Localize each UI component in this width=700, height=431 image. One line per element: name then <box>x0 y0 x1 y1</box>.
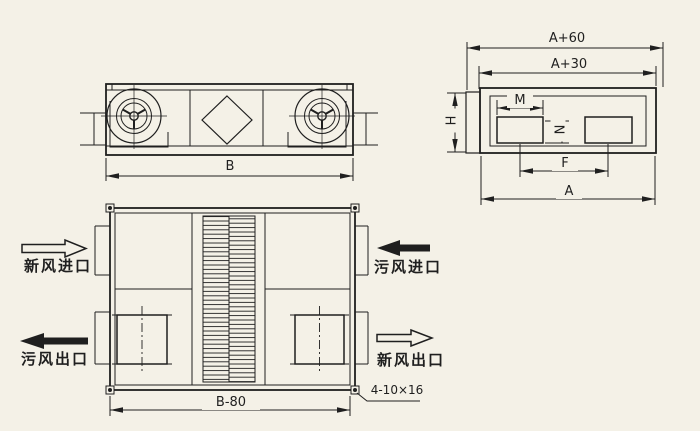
side-duct-stub <box>466 92 480 153</box>
exhaust-air-outlet-arrow-icon <box>20 333 88 349</box>
dim-label-a: A <box>556 184 582 199</box>
fan-plan-right <box>290 306 349 373</box>
fan-plan-left <box>112 306 172 373</box>
mounting-note: 4-10×16 <box>364 383 430 398</box>
heat-exchanger-diamond-icon <box>202 96 252 144</box>
dim-label-h: H <box>442 109 457 133</box>
port-label-exhaust-air-outlet: 污风出口 <box>21 348 89 369</box>
dim-label-b80: B-80 <box>202 395 260 410</box>
fan-icon <box>288 85 355 149</box>
dim-label-front-width: B <box>212 159 248 174</box>
drawing-sheet: B A+60 A+30 M N H F A B-80 4-10×16 新风进口 … <box>0 0 700 431</box>
opening-left <box>497 117 543 143</box>
dim-label-a60: A+60 <box>539 31 595 46</box>
fan-icon <box>101 85 168 149</box>
port-label-exhaust-air-inlet: 污风进口 <box>374 256 442 277</box>
dim-label-a30: A+30 <box>541 57 597 72</box>
dim-label-m: M <box>507 93 533 108</box>
fresh-air-outlet-arrow-icon <box>377 330 432 346</box>
heat-exchanger-core <box>203 216 255 382</box>
dim-label-n: N <box>551 118 566 142</box>
port-label-fresh-air-outlet: 新风出口 <box>377 349 445 370</box>
port-label-fresh-air-inlet: 新风进口 <box>24 255 92 276</box>
opening-right <box>585 117 632 143</box>
dim-label-f: F <box>552 156 578 171</box>
exhaust-air-inlet-arrow-icon <box>377 240 430 256</box>
